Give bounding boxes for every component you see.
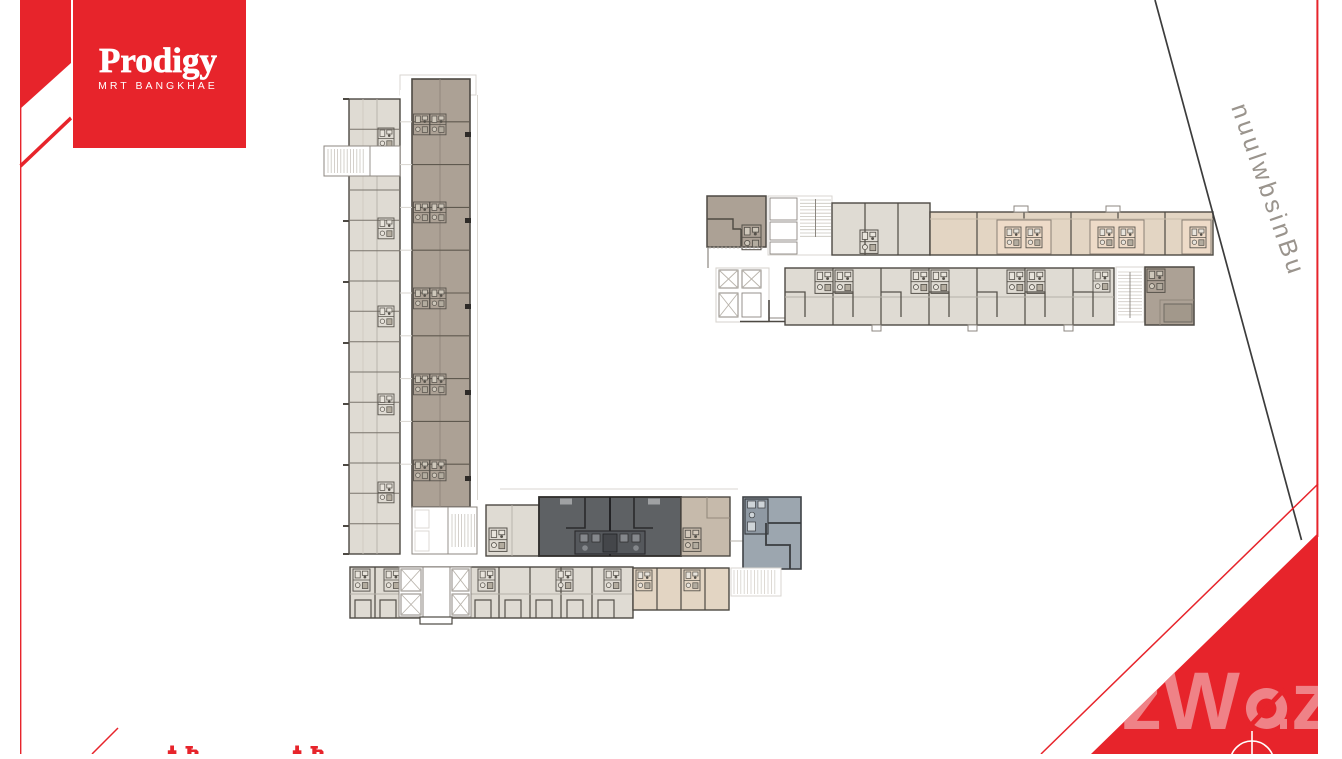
svg-text:MRT BANGKHAE: MRT BANGKHAE <box>98 80 218 92</box>
svg-text:z: z <box>1291 656 1333 747</box>
svg-text:zW: zW <box>1121 656 1241 747</box>
svg-text:nuulwbsinBu: nuulwbsinBu <box>1225 100 1311 281</box>
svg-text:Prodigy: Prodigy <box>99 41 217 80</box>
